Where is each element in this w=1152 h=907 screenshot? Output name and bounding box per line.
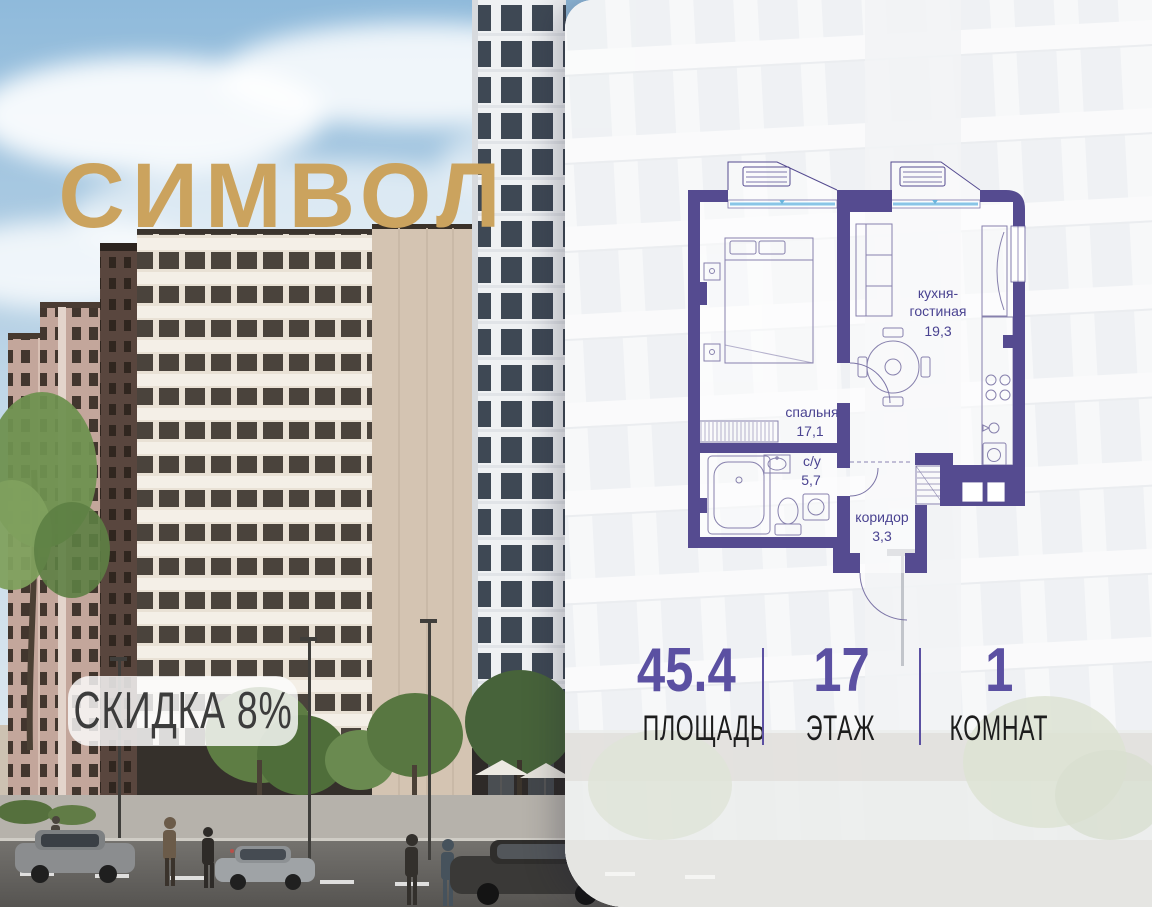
room-label-kitchen-1: кухня- bbox=[918, 285, 959, 301]
info-panel: кухня- гостиная 19,3 спальня 17,1 с/у 5,… bbox=[565, 0, 1152, 907]
stats-row: 45.4 ПЛОЩАДЬ 17 ЭТАЖ 1 КОМНАТ bbox=[565, 640, 1152, 760]
stat-area-label: ПЛОЩАДЬ bbox=[611, 711, 761, 746]
stat-area-value: 45.4 bbox=[611, 640, 761, 702]
stats-divider bbox=[919, 648, 921, 745]
stat-floor-value: 17 bbox=[766, 640, 916, 702]
stat-area: 45.4 ПЛОЩАДЬ bbox=[611, 640, 761, 746]
room-label-bedroom: спальня bbox=[785, 404, 838, 420]
room-area-kitchen: 19,3 bbox=[924, 323, 951, 339]
room-label-bathroom: с/у bbox=[803, 453, 821, 469]
room-area-bathroom: 5,7 bbox=[801, 472, 821, 488]
stat-floor: 17 ЭТАЖ bbox=[766, 640, 916, 746]
listing-card: СИМВОЛ СКИДКА 8% bbox=[0, 0, 1152, 907]
stat-floor-label: ЭТАЖ bbox=[766, 711, 916, 746]
room-label-kitchen-2: гостиная bbox=[910, 303, 967, 319]
building-photo-render bbox=[0, 0, 640, 907]
building-photo: СИМВОЛ СКИДКА 8% bbox=[0, 0, 640, 907]
room-area-corridor: 3,3 bbox=[872, 528, 892, 544]
floor-plan: кухня- гостиная 19,3 спальня 17,1 с/у 5,… bbox=[660, 140, 1060, 640]
stats-divider bbox=[762, 648, 764, 745]
discount-badge: СКИДКА 8% bbox=[68, 676, 298, 746]
discount-badge-text: СКИДКА 8% bbox=[74, 685, 293, 737]
entrance-door-arc bbox=[860, 573, 907, 620]
stat-rooms-label: КОМНАТ bbox=[924, 711, 1074, 746]
stat-rooms: 1 КОМНАТ bbox=[924, 640, 1074, 746]
stat-rooms-value: 1 bbox=[924, 640, 1074, 702]
room-area-bedroom: 17,1 bbox=[796, 423, 823, 439]
room-label-corridor: коридор bbox=[855, 509, 909, 525]
